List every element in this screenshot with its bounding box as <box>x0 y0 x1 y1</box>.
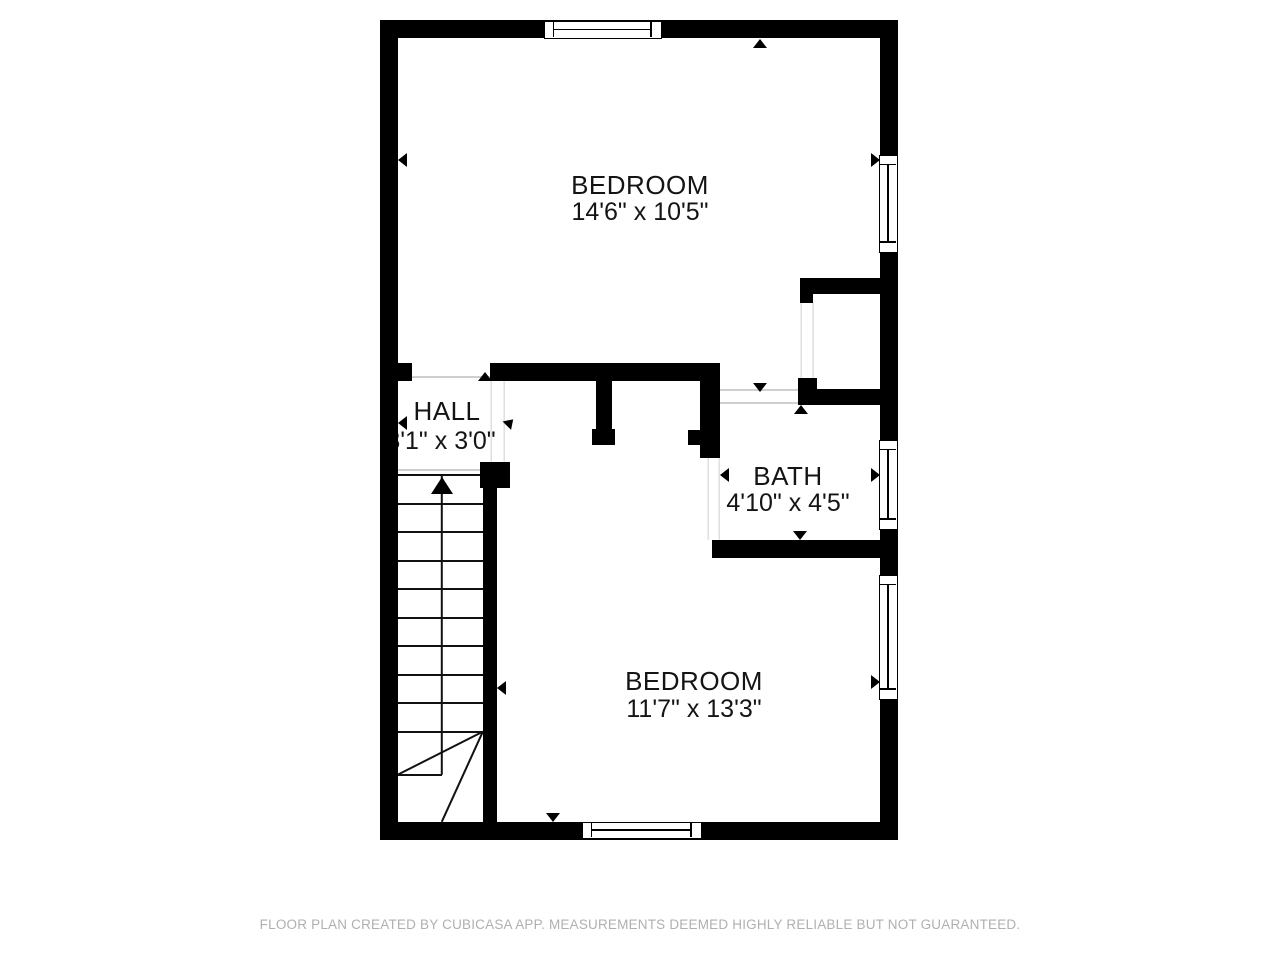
door-opening-line <box>812 303 813 380</box>
wall <box>483 487 497 822</box>
stairs-up-arrow-icon <box>431 477 453 494</box>
window-frame-line <box>690 823 691 837</box>
wall <box>380 20 398 840</box>
stair-tread-line <box>441 475 443 775</box>
opening-arrow-icon <box>497 681 506 695</box>
door-opening-line <box>398 469 480 470</box>
wall <box>592 429 615 445</box>
opening-arrow-icon <box>398 153 407 167</box>
room-dimensions-bath: 4'10" x 4'5" <box>726 491 849 516</box>
window-frame-line <box>887 164 888 241</box>
door-opening-line <box>720 402 798 403</box>
window-frame-line <box>650 22 651 37</box>
footer-disclaimer: FLOOR PLAN CREATED BY CUBICASA APP. MEAS… <box>260 917 1021 932</box>
window-icon <box>544 21 662 39</box>
opening-arrow-icon <box>480 465 489 479</box>
room-dimensions-hall: 3'1" x 3'0" <box>386 429 495 454</box>
wall <box>798 389 880 405</box>
opening-arrow-icon <box>398 416 407 430</box>
door-opening-line <box>707 458 708 540</box>
opening-arrow-icon <box>503 415 518 430</box>
opening-arrow-icon <box>720 468 729 482</box>
wall <box>800 294 813 303</box>
wall <box>688 430 700 445</box>
window-icon <box>879 575 898 700</box>
window-frame-line <box>887 449 888 518</box>
window-icon <box>879 155 898 253</box>
wall <box>880 20 898 840</box>
wall <box>800 278 880 294</box>
door-opening-line <box>800 303 801 380</box>
wall <box>596 379 612 431</box>
window-frame-line <box>591 829 690 830</box>
opening-arrow-icon <box>871 153 880 167</box>
opening-arrow-icon <box>793 531 807 540</box>
window-frame-line <box>880 241 896 242</box>
opening-arrow-icon <box>871 468 880 482</box>
stair-tread-line <box>441 732 483 823</box>
window-frame-line <box>887 584 888 688</box>
opening-arrow-icon <box>546 372 560 381</box>
floor-plan: BEDROOM 14'6" x 10'5" HALL 3'1" x 3'0" B… <box>0 0 1280 960</box>
room-dimensions-bedroom-1: 14'6" x 10'5" <box>571 200 708 225</box>
wall <box>700 379 720 458</box>
opening-arrow-icon <box>478 372 492 381</box>
room-label-bath: BATH <box>753 463 822 489</box>
wall <box>712 540 898 558</box>
room-label-bedroom-1: BEDROOM <box>571 172 709 198</box>
opening-arrow-icon <box>546 813 560 822</box>
opening-arrow-icon <box>753 39 767 48</box>
opening-arrow-icon <box>794 405 808 414</box>
room-label-bedroom-2: BEDROOM <box>625 668 763 694</box>
window-icon <box>582 822 702 839</box>
window-frame-line <box>880 688 896 689</box>
stair-tread-line <box>398 774 442 776</box>
window-frame-line <box>880 518 896 519</box>
window-frame-line <box>553 29 650 30</box>
opening-arrow-icon <box>871 675 880 689</box>
room-label-hall: HALL <box>413 398 480 424</box>
opening-arrow-icon <box>753 383 767 392</box>
window-icon <box>879 440 898 530</box>
wall <box>398 363 412 381</box>
room-dimensions-bedroom-2: 11'7" x 13'3" <box>626 697 761 722</box>
